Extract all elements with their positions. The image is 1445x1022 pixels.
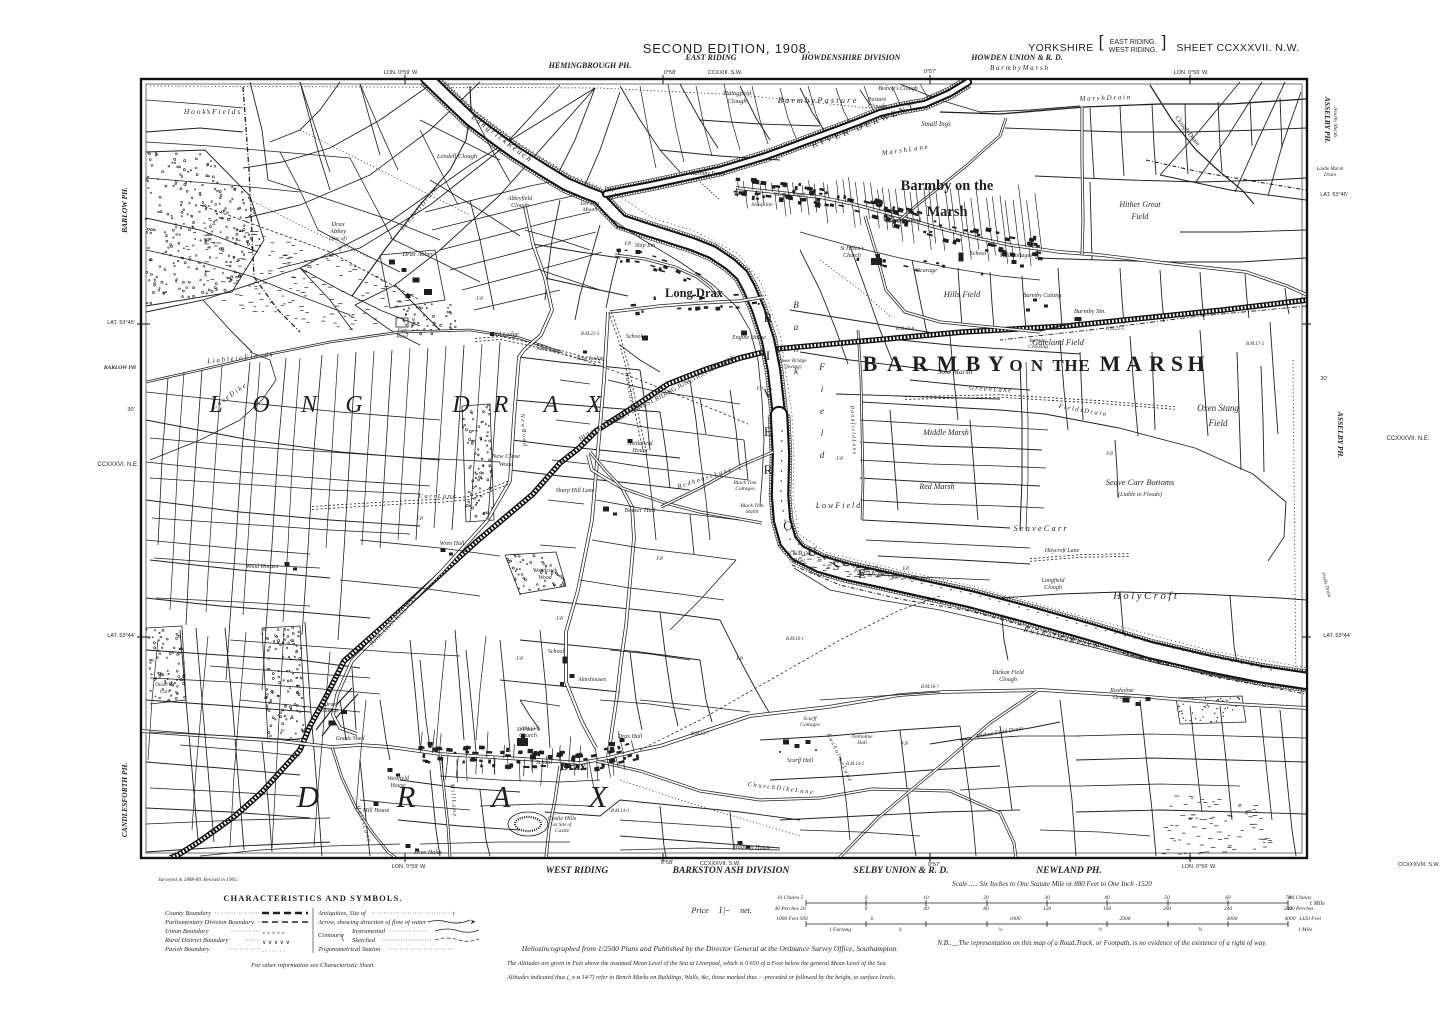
svg-text:1 Mile: 1 Mile xyxy=(1309,901,1325,907)
svg-text:Almshouses: Almshouses xyxy=(577,677,607,683)
svg-text:B a r m b y M a r s h: B a r m b y M a r s h xyxy=(990,64,1048,72)
svg-text:F.P.: F.P. xyxy=(515,657,523,662)
svg-text:Barmby on the: Barmby on the xyxy=(901,178,994,194)
svg-text:80 Chains: 80 Chains xyxy=(1289,895,1311,901)
svg-text:Station: Station xyxy=(321,708,338,714)
svg-text:➤: ➤ xyxy=(470,918,476,926)
svg-text:F.P.: F.P. xyxy=(900,742,908,747)
svg-text:V: V xyxy=(763,386,773,401)
svg-text:1320 Feet: 1320 Feet xyxy=(1299,916,1322,922)
svg-text:30: 30 xyxy=(1043,895,1050,901)
svg-text:I: I xyxy=(766,348,770,363)
svg-text:Engine House: Engine House xyxy=(731,335,766,341)
svg-text:Castle: Castle xyxy=(555,828,570,834)
svg-text:Vicarage: Vicarage xyxy=(915,268,937,274)
svg-text:[: [ xyxy=(1099,32,1104,51)
svg-text:Abbey: Abbey xyxy=(329,228,346,235)
svg-text:F.P.: F.P. xyxy=(623,242,631,247)
svg-text:1000: 1000 xyxy=(1010,916,1021,922)
svg-text:0: 0 xyxy=(871,916,874,922)
svg-text:Solo Marsh: Solo Marsh xyxy=(938,367,973,376)
svg-text:EAST RIDING: EAST RIDING xyxy=(685,53,737,62)
svg-text:Pasture: Pasture xyxy=(867,97,887,103)
svg-text:School: School xyxy=(536,760,553,766)
svg-text:A: A xyxy=(1126,351,1142,376)
svg-text:SHEET CCXXXVII. N.W.: SHEET CCXXXVII. N.W. xyxy=(1176,42,1299,54)
svg-text:S: S xyxy=(1171,351,1183,376)
svg-text:Longfield: Longfield xyxy=(1040,577,1065,584)
svg-text:R: R xyxy=(1149,351,1166,376)
svg-text:B.M.17-2: B.M.17-2 xyxy=(1246,342,1265,347)
svg-text:Mill Cottages: Mill Cottages xyxy=(999,253,1033,259)
svg-text:X: X xyxy=(586,392,603,418)
svg-text:F.P.: F.P. xyxy=(475,297,483,302)
svg-text:The Altitudes are given in Fee: The Altitudes are given in Feet above th… xyxy=(507,960,887,967)
svg-text:Drax Abbey: Drax Abbey xyxy=(401,251,433,258)
svg-text:Oxen Stang: Oxen Stang xyxy=(1197,403,1239,413)
svg-text:F.P.: F.P. xyxy=(415,517,423,522)
svg-text:BARLOW PH: BARLOW PH xyxy=(103,365,137,371)
svg-text:Rural District Boundary: Rural District Boundary xyxy=(164,937,229,944)
svg-text:Nettlefield: Nettlefield xyxy=(627,440,654,447)
svg-text:Lendell Clough: Lendell Clough xyxy=(436,153,477,160)
svg-text:Small Ings: Small Ings xyxy=(921,120,951,128)
svg-text:Barmby Cutting: Barmby Cutting xyxy=(1023,293,1062,299)
svg-text:0: 0 xyxy=(865,895,868,901)
svg-text:LON. 0°56′ W.: LON. 0°56′ W. xyxy=(1174,70,1209,76)
svg-text:Field: Field xyxy=(1208,418,1228,428)
svg-text:Ouserley: Ouserley xyxy=(155,682,175,688)
svg-text:Parish Boundary: Parish Boundary xyxy=(164,946,210,953)
svg-text:R: R xyxy=(912,351,929,376)
svg-text:Price: Price xyxy=(690,906,709,915)
svg-text:30′: 30′ xyxy=(127,407,134,413)
svg-text:(Swing): (Swing) xyxy=(784,363,801,370)
svg-text:60: 60 xyxy=(1225,895,1231,901)
svg-text:Wood: Wood xyxy=(499,461,514,468)
svg-text:Scurff Hall: Scurff Hall xyxy=(787,757,814,764)
svg-text:(Site of): (Site of) xyxy=(329,235,347,242)
svg-text:Drax: Drax xyxy=(330,221,344,228)
svg-text:O: O xyxy=(252,392,269,418)
svg-text:40 Perches 20: 40 Perches 20 xyxy=(774,905,806,912)
svg-text:e: e xyxy=(820,406,824,416)
svg-text:Castle Hills: Castle Hills xyxy=(548,816,577,822)
svg-text:0: 0 xyxy=(899,927,902,933)
svg-text:†: † xyxy=(338,245,342,254)
svg-text:(Liable to Floods): (Liable to Floods) xyxy=(1118,491,1162,498)
svg-text:Barmby Ferry: Barmby Ferry xyxy=(691,171,725,177)
svg-text:CCXXXVII. N.E.: CCXXXVII. N.E. xyxy=(1386,436,1429,442)
svg-text:0°58′: 0°58′ xyxy=(664,70,676,76)
svg-text:1|–: 1|– xyxy=(718,905,730,915)
svg-text:HEMINGBROUGH PH.: HEMINGBROUGH PH. xyxy=(548,61,632,70)
svg-text:Clough: Clough xyxy=(999,677,1017,683)
svg-text:LON. 0°59′ W.: LON. 0°59′ W. xyxy=(392,864,427,870)
svg-text:Crossing: Crossing xyxy=(1028,344,1048,350)
svg-text:Red Marsh: Red Marsh xyxy=(918,482,954,491)
svg-text:WEST RIDING: WEST RIDING xyxy=(546,866,609,876)
svg-text:ASSELBY PH.: ASSELBY PH. xyxy=(1336,411,1345,459)
svg-text:Long Drax: Long Drax xyxy=(665,286,724,300)
svg-text:Clough: Clough xyxy=(727,98,746,105)
svg-text:Westfield: Westfield xyxy=(387,775,410,782)
svg-text:LAT. 53°45′: LAT. 53°45′ xyxy=(107,320,135,326)
svg-text:3000: 3000 xyxy=(1226,916,1238,922)
svg-text:NEWLAND PH.: NEWLAND PH. xyxy=(1035,866,1101,876)
svg-text:10: 10 xyxy=(923,895,929,901)
svg-text:B.M.16-?: B.M.16-? xyxy=(921,685,940,690)
svg-text:Church: Church xyxy=(519,733,537,739)
svg-text:1 Furlong: 1 Furlong xyxy=(829,927,851,933)
svg-text:BARKSTON ASH DIVISION: BARKSTON ASH DIVISION xyxy=(672,866,791,876)
svg-text:H o o k’s F i e l d s: H o o k’s F i e l d s xyxy=(183,107,240,116)
svg-text:net.: net. xyxy=(740,906,752,915)
svg-text:Mill House: Mill House xyxy=(362,808,390,814)
svg-text:HOWDEN UNION & R. D.: HOWDEN UNION & R. D. xyxy=(970,53,1063,62)
svg-text:Church: Church xyxy=(843,253,861,259)
svg-text:Clough: Clough xyxy=(1044,585,1062,591)
svg-text:B: B xyxy=(793,300,799,310)
svg-text:ASSELBY PH.: ASSELBY PH. xyxy=(1323,96,1332,144)
svg-text:M: M xyxy=(1100,351,1121,376)
svg-text:H: H xyxy=(1187,351,1204,376)
svg-text:20: 20 xyxy=(983,895,989,901)
svg-text:S: S xyxy=(832,558,839,573)
svg-text:D: D xyxy=(451,392,469,418)
svg-text:B.M.13-7: B.M.13-7 xyxy=(521,727,540,732)
svg-text:80: 80 xyxy=(983,906,989,912)
svg-text:F.P.: F.P. xyxy=(835,457,843,462)
svg-text:Contours: Contours xyxy=(318,932,343,939)
svg-text:d: d xyxy=(820,450,825,460)
svg-text:Cottages: Cottages xyxy=(800,722,820,728)
svg-text:H.W.M.O.T.: H.W.M.O.T. xyxy=(786,551,813,557)
svg-text:Hither Great: Hither Great xyxy=(1118,200,1161,209)
svg-text:R: R xyxy=(764,310,773,325)
svg-text:D: D xyxy=(296,779,319,814)
svg-text:Sharp Hill Lane: Sharp Hill Lane xyxy=(556,488,595,494)
svg-text:SELBY UNION & R. D.: SELBY UNION & R. D. xyxy=(853,866,948,876)
svg-text:Sloop Inn: Sloop Inn xyxy=(751,202,772,208)
svg-text:1 Mile: 1 Mile xyxy=(1298,927,1313,933)
svg-text:∨ ∨ ∨ ∨ ∨: ∨ ∨ ∨ ∨ ∨ xyxy=(262,940,290,946)
svg-text:N: N xyxy=(1031,356,1044,375)
svg-text:Mud: Mud xyxy=(794,559,805,564)
svg-text:0°57′: 0°57′ xyxy=(924,69,936,75)
svg-text:E: E xyxy=(1078,356,1089,375)
svg-text:CCXXXVIII. S.W.: CCXXXVIII. S.W. xyxy=(1398,862,1440,868)
svg-text:H: H xyxy=(1064,356,1077,375)
svg-text:LAT. 53°44′: LAT. 53°44′ xyxy=(107,633,135,639)
svg-text:200: 200 xyxy=(1163,906,1172,912)
svg-text:Grange: Grange xyxy=(1113,695,1132,701)
svg-text:Arrow, showing direction of fl: Arrow, showing direction of flow of wate… xyxy=(317,919,427,926)
svg-text:Pond: Pond xyxy=(395,334,408,340)
svg-text:H o l y C r o f t: H o l y C r o f t xyxy=(1112,591,1178,602)
svg-text:Drax: Drax xyxy=(560,759,586,773)
svg-text:4000: 4000 xyxy=(1285,915,1296,922)
svg-text:Sketched: Sketched xyxy=(352,937,376,944)
svg-text:Asselby Marsh: Asselby Marsh xyxy=(1332,106,1337,137)
svg-text:New Close: New Close xyxy=(491,453,520,460)
svg-text:B.M.22-3: B.M.22-3 xyxy=(581,332,600,337)
svg-text:BARLOW PH.: BARLOW PH. xyxy=(120,187,129,234)
svg-text:Antiquities, Site of: Antiquities, Site of xyxy=(317,910,367,917)
svg-text:B: B xyxy=(863,351,878,376)
svg-text:School: School xyxy=(626,334,643,340)
svg-text:Barmby Stn.: Barmby Stn. xyxy=(1074,308,1107,315)
svg-text:160: 160 xyxy=(1103,906,1112,912)
svg-text:F.P.: F.P. xyxy=(1105,452,1113,457)
svg-text:Old Lodge: Old Lodge xyxy=(491,331,519,338)
svg-text:Union Boundary: Union Boundary xyxy=(165,928,209,935)
svg-text:S e a v e C a r r: S e a v e C a r r xyxy=(1013,523,1067,533)
svg-text:a: a xyxy=(794,322,799,332)
svg-text:Tidingfield: Tidingfield xyxy=(723,90,752,97)
svg-text:Carr: Carr xyxy=(160,689,172,695)
svg-text:EAST RIDING.: EAST RIDING. xyxy=(1110,39,1157,46)
svg-text:B.M.16-1: B.M.16-1 xyxy=(786,637,804,642)
svg-text:B.M.13-7: B.M.13-7 xyxy=(691,732,710,737)
svg-text:Field: Field xyxy=(1131,212,1150,221)
svg-text:Rusholme: Rusholme xyxy=(1109,688,1134,694)
svg-text:Y: Y xyxy=(988,351,1004,376)
svg-text:Woodcock: Woodcock xyxy=(533,568,558,574)
svg-text:St Helen's: St Helen's xyxy=(840,246,865,252)
svg-text:Scale ..... Six Inches to One: Scale ..... Six Inches to One Statute Mi… xyxy=(952,880,1152,888)
svg-text:F.P.: F.P. xyxy=(755,387,763,392)
svg-text:T: T xyxy=(1052,356,1064,375)
svg-text:R: R xyxy=(493,392,509,418)
svg-text:1000 Feet 500: 1000 Feet 500 xyxy=(776,916,808,922)
svg-text:B a r m b y P a s t u r e: B a r m b y P a s t u r e xyxy=(778,95,857,105)
svg-text:B.M.22-5: B.M.22-5 xyxy=(1106,327,1125,332)
svg-text:B.M.14-2: B.M.14-2 xyxy=(846,762,865,767)
svg-text:0: 0 xyxy=(865,906,868,912)
svg-text:School: School xyxy=(548,649,565,655)
svg-text:10 Chains 5: 10 Chains 5 xyxy=(777,895,804,901)
svg-text:New Lodge: New Lodge xyxy=(575,356,604,362)
svg-text:G: G xyxy=(345,392,362,418)
svg-text:240: 240 xyxy=(1224,905,1233,912)
svg-text:F.P.: F.P. xyxy=(901,567,909,572)
svg-text:A: A xyxy=(490,779,512,814)
svg-text:2000: 2000 xyxy=(1120,916,1131,922)
svg-text:Meth. Chapel: Meth. Chapel xyxy=(774,192,805,198)
svg-text:Grange Pond: Grange Pond xyxy=(889,218,922,224)
svg-text:O: O xyxy=(783,518,792,533)
svg-text:C a r r L a n e: C a r r L a n e xyxy=(419,493,456,500)
svg-text:House: House xyxy=(631,448,648,454)
svg-text:B.M.22-8: B.M.22-8 xyxy=(896,327,915,332)
svg-text:¼: ¼ xyxy=(998,927,1002,933)
svg-text:]: ] xyxy=(1162,32,1167,51)
svg-text:Dickon Field: Dickon Field xyxy=(991,670,1024,676)
svg-text:F.P.: F.P. xyxy=(735,657,743,662)
svg-text:L o w F i e l d: L o w F i e l d xyxy=(815,501,862,510)
svg-text:Heliozincographed from 1/2500: Heliozincographed from 1/2500 Plans and … xyxy=(521,944,899,953)
svg-text:Middle Marsh: Middle Marsh xyxy=(922,428,969,437)
svg-text:YORKSHIRE: YORKSHIRE xyxy=(1028,42,1093,54)
svg-text:Seave Carr Bottoms: Seave Carr Bottoms xyxy=(1106,477,1175,487)
svg-text:Marsh: Marsh xyxy=(926,204,967,220)
svg-text:Staith: Staith xyxy=(746,509,759,515)
svg-text:Laidle Marsh: Laidle Marsh xyxy=(1315,167,1344,172)
svg-text:LON. 0°56′ W.: LON. 0°56′ W. xyxy=(1182,864,1217,870)
svg-text:Surveyed in 1888-89. Revised: Surveyed in 1888-89. Revised in 1905. xyxy=(158,877,238,883)
svg-text:Drax Hall: Drax Hall xyxy=(617,734,643,740)
svg-text:WEST RIDING.: WEST RIDING. xyxy=(1109,47,1158,54)
svg-text:N.B..__The representation on t: N.B..__The representation on this map of… xyxy=(936,939,1267,947)
svg-text:Wren Hall: Wren Hall xyxy=(440,541,465,547)
svg-text:n: n xyxy=(794,344,799,354)
svg-text:Ship Inn: Ship Inn xyxy=(635,243,655,249)
svg-text:Bishop's Clough: Bishop's Clough xyxy=(878,86,917,92)
svg-text:A: A xyxy=(887,351,903,376)
svg-text:× × × × ×: × × × × × xyxy=(262,931,285,937)
svg-text:LON. 0°59′ W.: LON. 0°59′ W. xyxy=(384,70,419,76)
svg-text:Drax Hales: Drax Hales xyxy=(413,850,442,856)
svg-text:Hills Field: Hills Field xyxy=(943,289,981,299)
svg-text:Altitudes indicated thus (, ʙ: Altitudes indicated thus (, ʙ ᴍ 14·7) re… xyxy=(506,974,895,981)
svg-text:Boater Hall: Boater Hall xyxy=(625,507,656,514)
svg-text:Clough: Clough xyxy=(868,104,886,110)
svg-text:School: School xyxy=(970,251,987,257)
svg-text:For other information see Char: For other information see Characteristic… xyxy=(250,962,375,969)
svg-text:County Boundary: County Boundary xyxy=(165,910,211,917)
svg-text:X: X xyxy=(587,779,609,814)
svg-text:CCXXXVI. N.E.: CCXXXVI. N.E. xyxy=(97,462,139,468)
svg-text:30′: 30′ xyxy=(1320,376,1327,382)
svg-text:0°58′: 0°58′ xyxy=(661,860,673,866)
svg-text:LAT. 53°45′: LAT. 53°45′ xyxy=(1320,192,1348,198)
svg-text:E: E xyxy=(764,424,772,439)
svg-text:CCXXIII. S.W.: CCXXIII. S.W. xyxy=(708,70,743,76)
svg-text:HOWDENSHIRE DIVISION: HOWDENSHIRE DIVISION xyxy=(801,53,902,62)
svg-text:Halfway House: Halfway House xyxy=(732,844,771,851)
svg-text:Scurff: Scurff xyxy=(803,715,818,722)
svg-text:120: 120 xyxy=(1043,906,1052,912)
svg-text:40: 40 xyxy=(1104,894,1110,901)
svg-text:Wood Houses: Wood Houses xyxy=(246,564,279,570)
svg-text:A: A xyxy=(542,392,559,418)
svg-text:· · · · · · ·: · · · · · · · xyxy=(262,949,285,955)
svg-text:50: 50 xyxy=(1164,895,1170,901)
svg-text:Haycroft Lane: Haycroft Lane xyxy=(1044,547,1080,554)
svg-text:Goods Shed: Goods Shed xyxy=(336,736,366,742)
svg-text:LAT. 53°44′: LAT. 53°44′ xyxy=(1323,633,1351,639)
svg-text:N: N xyxy=(300,392,319,418)
svg-text:Drain: Drain xyxy=(1323,173,1336,178)
svg-text:Wood: Wood xyxy=(538,575,552,581)
svg-text:House: House xyxy=(389,783,406,789)
svg-text:Trigonometrical Station: Trigonometrical Station xyxy=(318,946,380,953)
svg-text:¾: ¾ xyxy=(1198,927,1202,933)
svg-text:†: † xyxy=(452,912,455,918)
svg-text:B.M.14-3: B.M.14-3 xyxy=(611,809,630,814)
svg-text:Parliamentary Division Boundar: Parliamentary Division Boundary xyxy=(164,919,254,926)
svg-text:O: O xyxy=(1009,356,1022,375)
svg-text:40: 40 xyxy=(923,905,929,912)
svg-text:CANDLESFORTH PH.: CANDLESFORTH PH. xyxy=(120,763,129,838)
svg-text:F.P.: F.P. xyxy=(555,617,563,622)
svg-text:CHARACTERISTICS AND SYMBOLS.: CHARACTERISTICS AND SYMBOLS. xyxy=(223,893,402,903)
svg-text:F.P.: F.P. xyxy=(655,557,663,562)
svg-text:Cottages: Cottages xyxy=(735,486,755,492)
svg-text:Mouth: Mouth xyxy=(582,207,598,213)
svg-text:Hall: Hall xyxy=(856,740,867,746)
svg-text:R: R xyxy=(764,462,773,477)
svg-text:½: ½ xyxy=(1098,926,1102,933)
svg-text:Clough: Clough xyxy=(511,203,529,209)
svg-text:F: F xyxy=(818,362,825,372)
svg-text:Instrumental: Instrumental xyxy=(351,928,385,935)
svg-text:Albeyfield: Albeyfield xyxy=(507,195,533,202)
